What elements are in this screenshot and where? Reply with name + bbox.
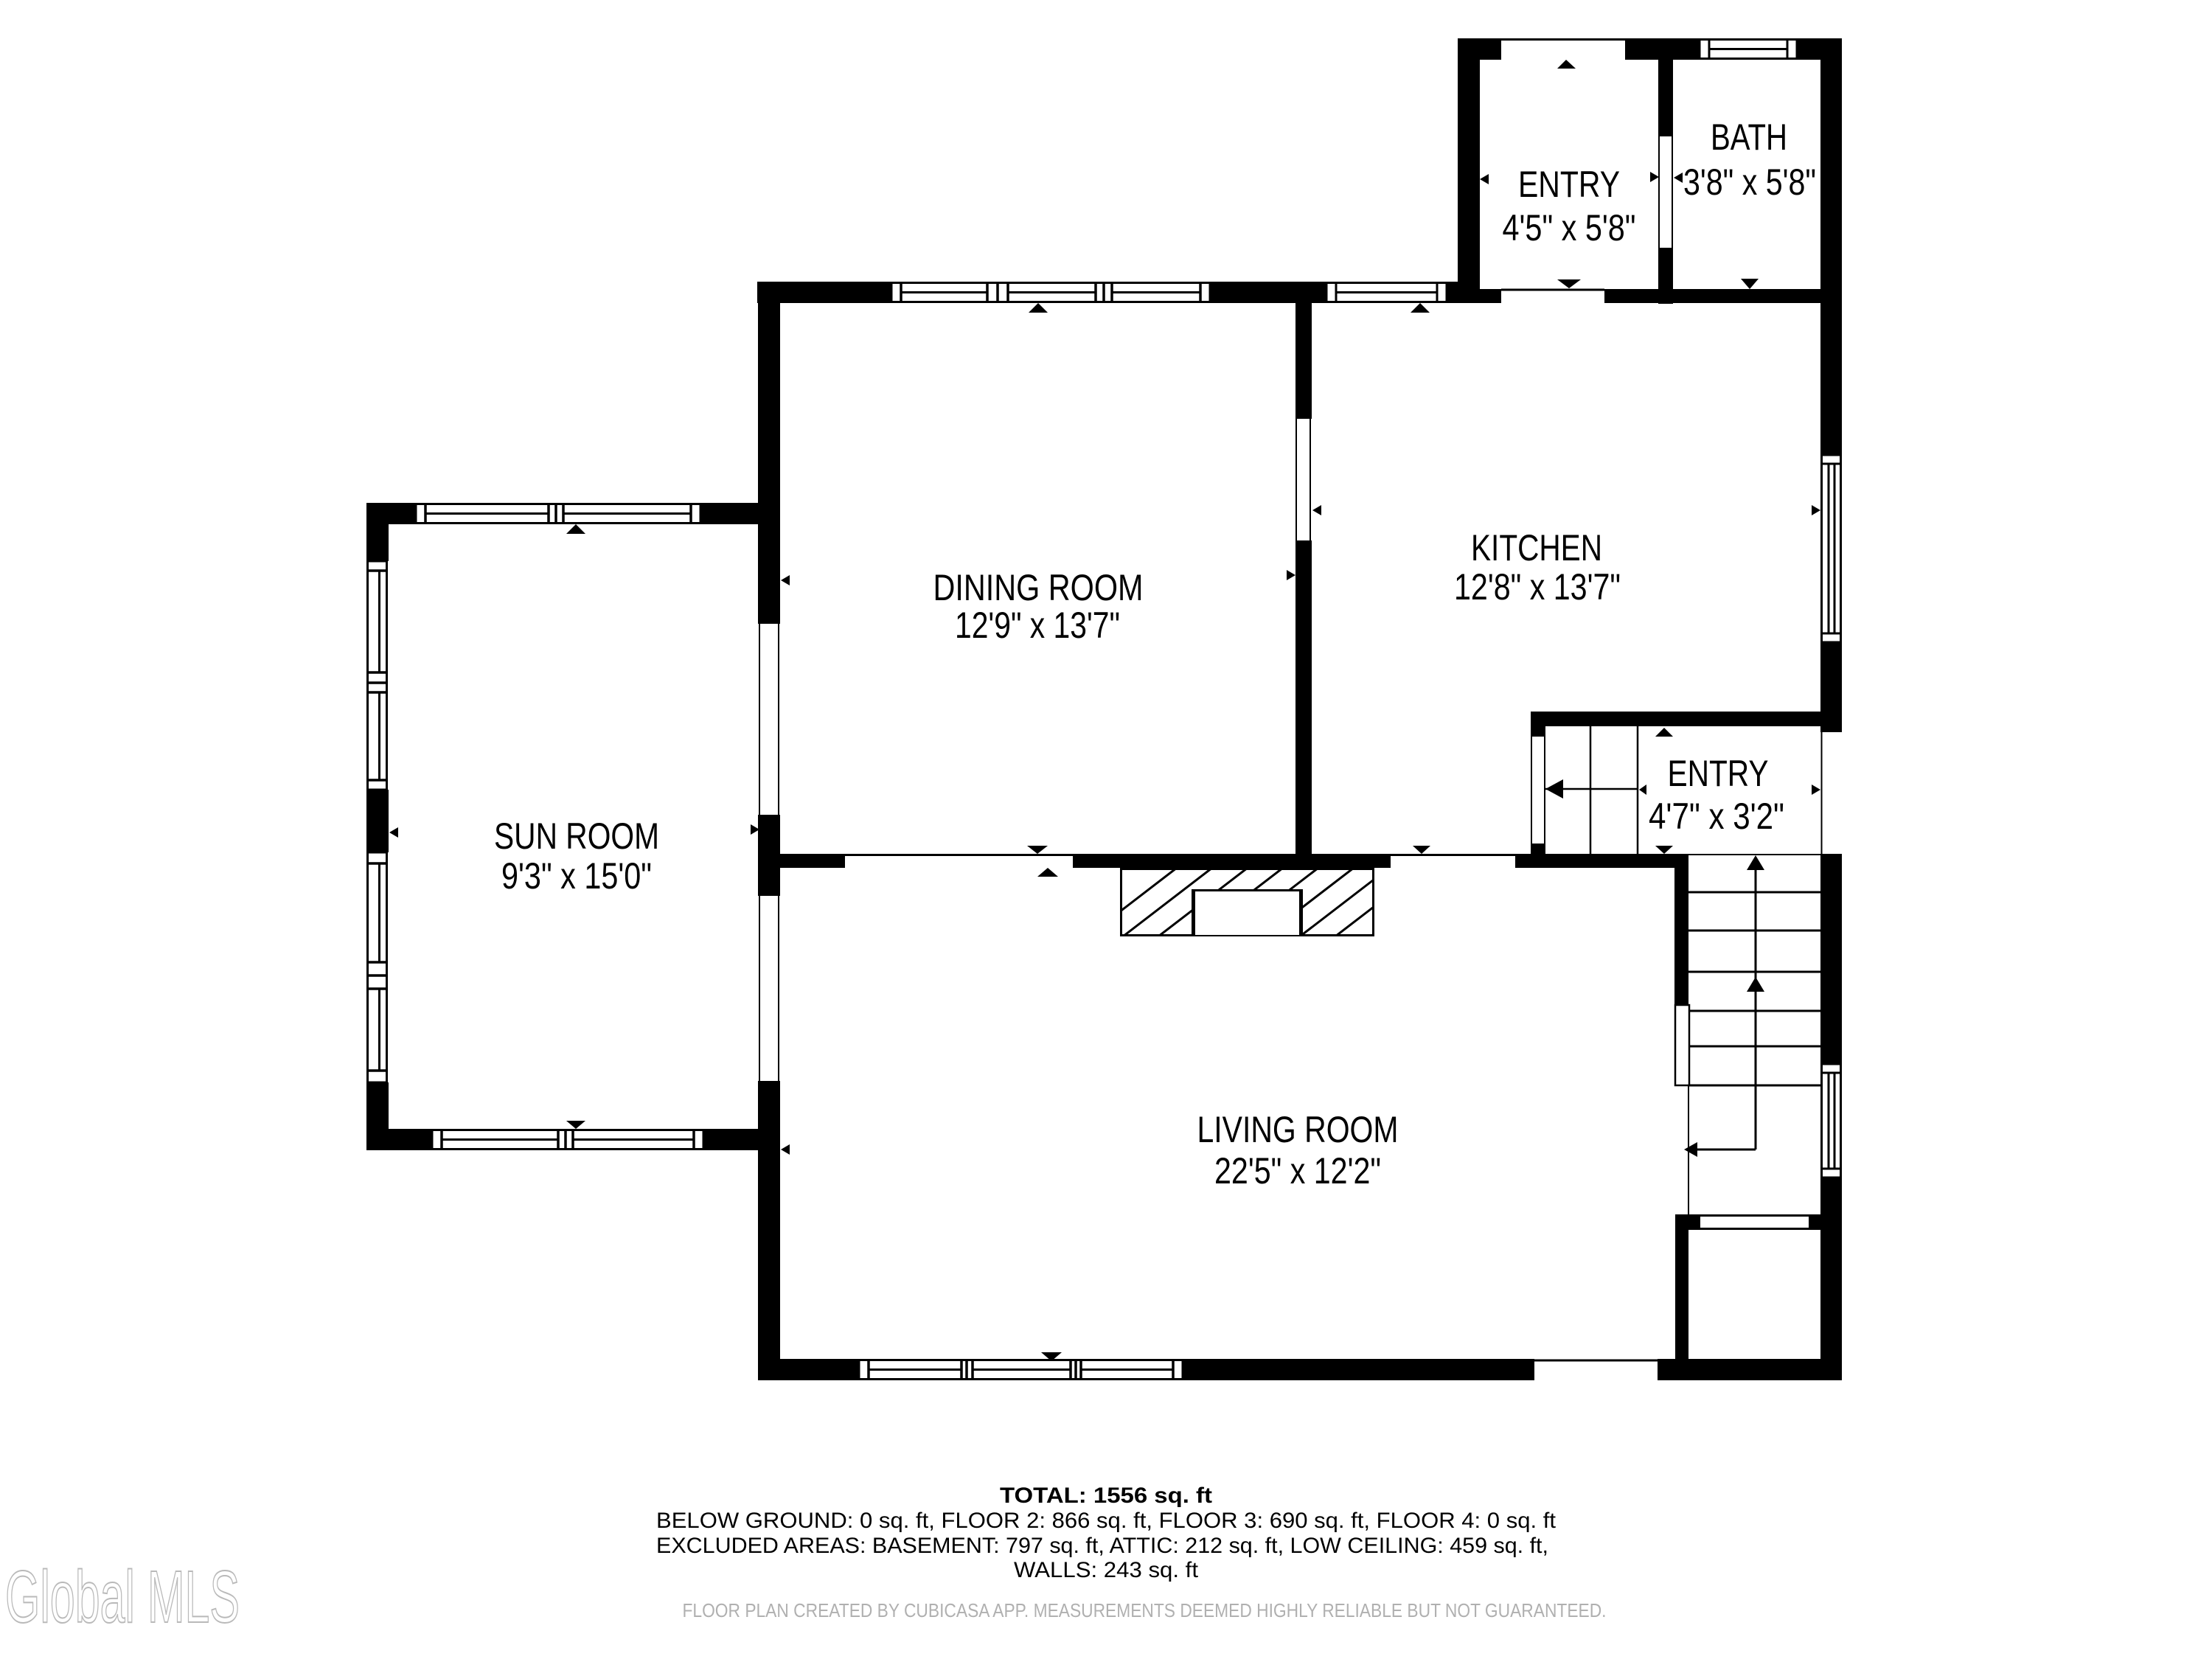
svg-text:DINING ROOM: DINING ROOM (933, 567, 1144, 608)
svg-text:3'8" x 5'8": 3'8" x 5'8" (1683, 161, 1816, 203)
svg-text:9'3" x 15'0": 9'3" x 15'0" (501, 855, 652, 897)
svg-text:KITCHEN: KITCHEN (1471, 527, 1602, 568)
svg-text:BATH: BATH (1711, 116, 1787, 158)
svg-text:Global MLS: Global MLS (5, 1556, 240, 1638)
svg-text:WALLS: 243 sq. ft: WALLS: 243 sq. ft (1014, 1558, 1199, 1582)
svg-text:TOTAL: 1556 sq. ft: TOTAL: 1556 sq. ft (1000, 1484, 1212, 1508)
svg-text:LIVING ROOM: LIVING ROOM (1197, 1109, 1399, 1150)
svg-text:4'7" x 3'2": 4'7" x 3'2" (1649, 796, 1784, 837)
svg-text:4'5" x 5'8": 4'5" x 5'8" (1503, 207, 1636, 248)
svg-text:ENTRY: ENTRY (1668, 753, 1769, 794)
svg-text:EXCLUDED AREAS: BASEMENT: 797: EXCLUDED AREAS: BASEMENT: 797 sq. ft, AT… (656, 1534, 1548, 1558)
svg-text:BELOW GROUND: 0 sq. ft, FLOOR: BELOW GROUND: 0 sq. ft, FLOOR 2: 866 sq.… (656, 1509, 1557, 1533)
svg-text:FLOOR PLAN CREATED BY CUBICASA: FLOOR PLAN CREATED BY CUBICASA APP. MEAS… (683, 1599, 1607, 1621)
svg-text:ENTRY: ENTRY (1518, 164, 1620, 205)
svg-text:22'5" x 12'2": 22'5" x 12'2" (1214, 1150, 1381, 1192)
svg-text:12'9" x 13'7": 12'9" x 13'7" (955, 605, 1120, 646)
svg-text:12'8" x 13'7": 12'8" x 13'7" (1454, 566, 1621, 608)
svg-text:SUN ROOM: SUN ROOM (494, 815, 659, 857)
